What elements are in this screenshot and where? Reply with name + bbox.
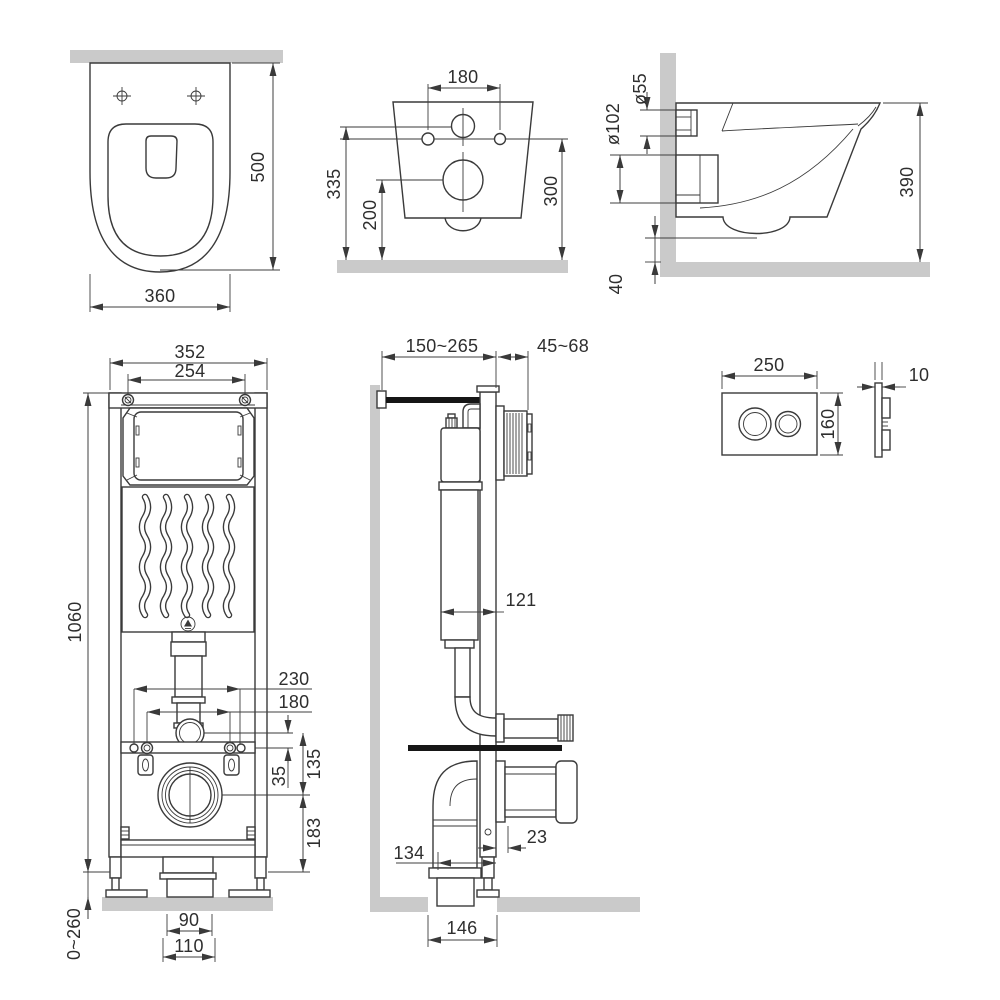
technical-drawing-page: 500 360 180 335 2 [0,0,1000,1000]
dim-finish-range: 45~68 [498,336,589,410]
frame-left-rail [109,393,121,857]
dim-label-134: 134 [394,843,425,863]
water-connector-side [496,714,573,742]
cistern-side [439,428,482,648]
flush-pipe-front [171,632,206,728]
dim-label-180: 180 [448,67,479,87]
drain-socket [158,763,222,827]
dim-label-183: 183 [304,818,324,849]
wall-section [370,385,380,897]
dim-label-150-265: 150~265 [406,336,479,356]
dim-depth-range: 150~265 [382,336,496,390]
dim-height-1060: 1060 [65,393,110,872]
toilet-top-view: 500 360 [70,50,283,312]
floor-right [497,897,640,912]
floor-section [102,897,273,911]
dim-pipe-width-90: 90 [167,910,212,936]
dim-label-250: 250 [754,355,785,375]
dim-label-146: 146 [447,918,478,938]
frame-bottom-member [121,840,255,857]
floor-section [660,262,930,277]
plate-mechanism-upper [882,398,890,418]
dim-height-390: 390 [883,103,928,262]
inlet-stub [676,110,697,136]
dim-inlet-height-335: 335 [324,127,346,260]
dim-label-10: 10 [909,365,930,385]
toilet-rear-view: 180 335 200 300 [324,67,568,273]
dim-label-254: 254 [175,361,206,381]
dim-label-35: 35 [269,766,289,787]
wall-section [70,50,283,63]
outlet-stub [676,155,718,203]
dim-width-360: 360 [90,274,230,312]
dim-label-335: 335 [324,169,344,200]
rod-wall-anchor [377,391,386,408]
dim-label-390: 390 [897,167,917,198]
flush-plate-front-view: 250 160 [722,355,843,455]
dim-inner-width-254: 254 [128,361,245,394]
floor-section [337,260,568,273]
plate-mechanism-lower [882,430,890,450]
flush-plate-side-view: 10 [857,362,929,457]
dim-foot-range: 0~260 [64,850,88,960]
dim-label-300: 300 [541,176,561,207]
plate-side-profile [875,383,882,457]
dim-plate-width-250: 250 [722,355,817,389]
dim-label-160: 160 [818,409,838,440]
frame-front-view: 352 254 1060 0~260 230 180 [64,342,324,962]
dim-label-o55: ø55 [630,73,650,105]
toilet-fixing-studs [408,745,562,751]
toilet-side-view: ø55 ø102 390 40 [603,53,930,294]
dim-label-352: 352 [175,342,206,362]
dim-drain-height-200: 200 [360,180,382,260]
plate-housing [496,406,532,480]
dim-label-230: 230 [279,669,310,689]
dim-label-40: 40 [606,274,626,295]
drain-elbow-side [429,761,481,906]
dim-label-200: 200 [360,200,380,231]
frame-side-view: 150~265 45~68 121 23 134 146 [370,336,640,947]
left-bolt-hole [422,133,434,145]
cistern-top-elbow [463,404,480,428]
access-window-inner [134,412,243,480]
dim-label-180-frame: 180 [279,692,310,712]
drawing-canvas: 500 360 180 335 2 [0,0,1000,1000]
dim-label-121: 121 [506,590,537,610]
dim-flange-width-110: 110 [163,936,215,962]
dim-label-1060: 1060 [65,601,85,642]
frame-rail-side [480,392,496,857]
right-bolt-hole [495,134,506,145]
wall-section [660,53,676,263]
dim-drain-height-183: 183 [268,795,324,872]
drain-connector-side [496,761,577,823]
threaded-support-rod [386,397,480,403]
dim-label-360: 360 [145,286,176,306]
dim-label-110: 110 [174,936,204,956]
frame-right-rail [255,393,267,857]
fill-valve-cap [446,414,457,428]
dim-bolt-height-300: 300 [541,139,562,260]
rail-clips [121,827,255,839]
toilet-body-outline [90,63,230,272]
dim-bend-to-drain-135: 135 [303,733,324,795]
dim-label-23: 23 [527,827,548,847]
dim-label-500: 500 [248,152,268,183]
dim-label-135: 135 [304,749,324,780]
drain-boss [445,218,481,231]
dim-plate-height-160: 160 [818,393,843,455]
dim-floor-offset-146: 146 [428,915,497,947]
dim-label-45-68: 45~68 [537,336,589,356]
drain-pipe-bottom [160,857,216,897]
dim-label-90: 90 [179,910,200,930]
dim-label-0-260: 0~260 [64,908,84,960]
dim-plate-thickness-10: 10 [857,362,929,387]
floor-left [370,897,428,912]
dim-label-o102: ø102 [603,103,623,145]
